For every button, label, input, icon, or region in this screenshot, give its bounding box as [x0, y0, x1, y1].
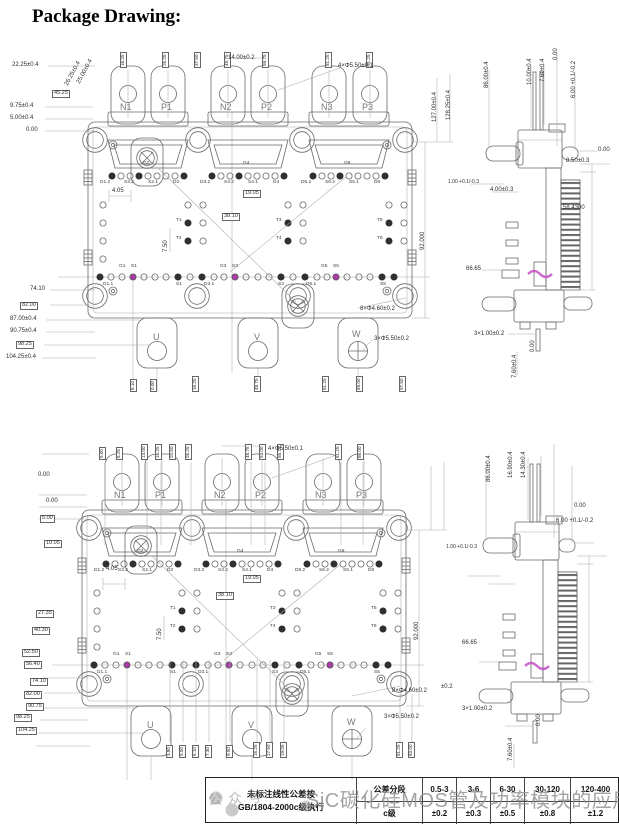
drawing2-leader-lines	[105, 462, 412, 742]
drawing-lineart	[0, 0, 619, 823]
module-side-view	[470, 52, 610, 376]
package-drawing-page: Package Drawing:	[0, 0, 619, 823]
watermark-stamp-text: 公众号	[208, 786, 269, 809]
watermark-text: SiC碳化硅MOS管及功率模块的应用	[306, 784, 619, 813]
module-top-view	[42, 58, 453, 392]
